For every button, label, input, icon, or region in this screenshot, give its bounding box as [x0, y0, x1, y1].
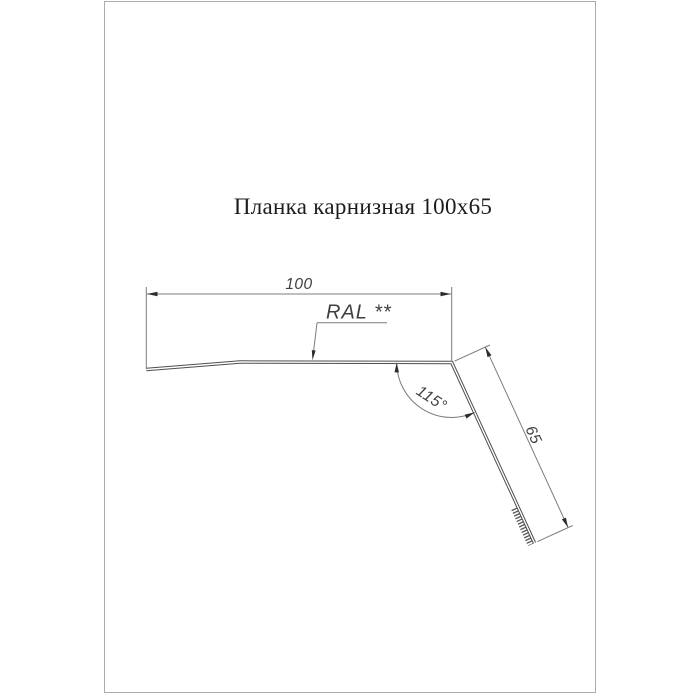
- angle-arrow-top-icon: [395, 363, 400, 373]
- extension-line-bottom: [537, 526, 573, 542]
- dim-angle: 115°: [395, 363, 475, 419]
- angle-label: 115°: [413, 383, 450, 415]
- technical-drawing: 100 RAL ** 115° 65: [0, 0, 700, 700]
- dim-length: 65: [454, 345, 572, 542]
- profile-outline: [146, 362, 534, 543]
- profile: [146, 362, 534, 545]
- leader-arrow-icon: [312, 350, 316, 360]
- extension-line-top: [454, 345, 490, 361]
- dim-width-label: 100: [285, 276, 312, 293]
- arrowhead-left-icon: [147, 292, 158, 296]
- coating-callout: RAL **: [312, 302, 392, 361]
- arrowhead-top-icon: [485, 347, 491, 357]
- screenshot-canvas: Планка карнизная 100x65 100 RAL **: [0, 0, 700, 700]
- angle-arrow-leg-icon: [465, 412, 475, 418]
- arrowhead-bottom-icon: [562, 518, 568, 528]
- dim-width: 100: [146, 276, 451, 369]
- arrowhead-right-icon: [441, 292, 452, 296]
- coating-label: RAL **: [326, 302, 392, 324]
- profile-core: [146, 362, 534, 543]
- dim-length-label: 65: [522, 423, 545, 447]
